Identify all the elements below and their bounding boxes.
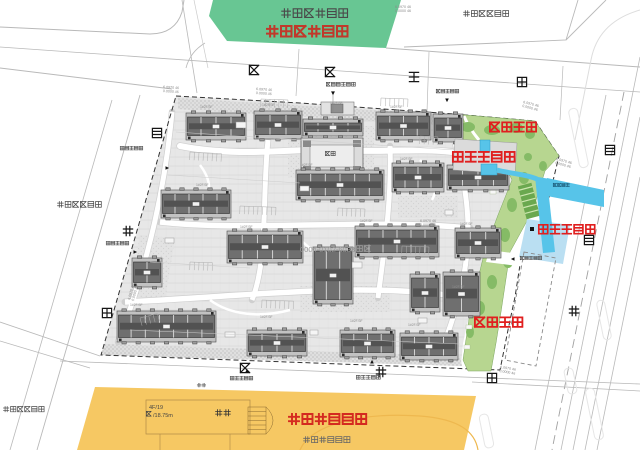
- svg-text:1#2F/3F: 1#2F/3F: [300, 163, 313, 167]
- svg-text:1#2F/3F: 1#2F/3F: [408, 323, 421, 327]
- svg-text:1#2F/3F: 1#2F/3F: [400, 157, 413, 161]
- svg-text:1#2F/3F: 1#2F/3F: [390, 105, 403, 109]
- svg-text:4F/19: 4F/19: [149, 405, 163, 411]
- svg-text:1#2F/3F: 1#2F/3F: [330, 101, 343, 105]
- svg-text:0.0000 46: 0.0000 46: [420, 223, 436, 227]
- svg-text:1#2F/3F: 1#2F/3F: [452, 285, 465, 289]
- svg-text:1#2F/3F: 1#2F/3F: [262, 103, 275, 107]
- svg-text:1#2F/3F: 1#2F/3F: [200, 105, 213, 109]
- svg-text:0004-0102-6038: 0004-0102-6038: [300, 245, 355, 254]
- svg-text:1#2F/3F: 1#2F/3F: [240, 225, 253, 229]
- svg-text:0.0000 46: 0.0000 46: [395, 9, 411, 13]
- svg-text:1#2F/3F: 1#2F/3F: [350, 319, 363, 323]
- svg-text:1#2F/3F: 1#2F/3F: [260, 315, 273, 319]
- svg-text:1#2F/3F: 1#2F/3F: [360, 219, 373, 223]
- svg-text:1#2F/3F: 1#2F/3F: [196, 183, 209, 187]
- svg-text:/18.75m: /18.75m: [153, 413, 173, 419]
- svg-text:1#2F/3F: 1#2F/3F: [460, 222, 473, 226]
- svg-text:1#2F/3F: 1#2F/3F: [130, 303, 143, 307]
